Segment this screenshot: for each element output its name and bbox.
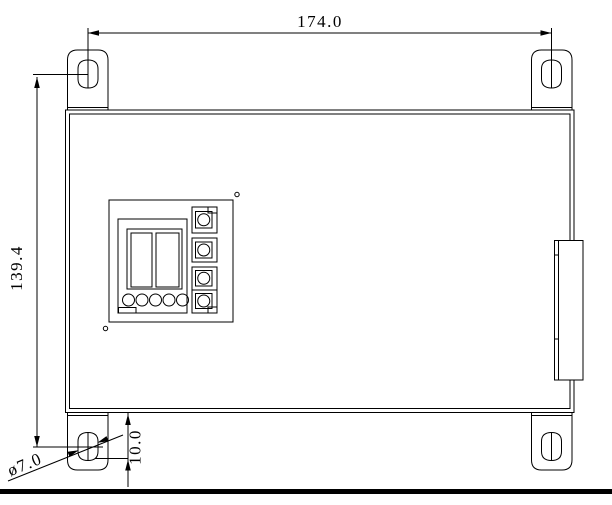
control-panel [103, 192, 239, 330]
dimension-hole-diameter-label: ø7.0 [5, 449, 45, 480]
drawing-line-work: 174.0 139.4 10.0 [0, 12, 612, 494]
drawing-frame-line [0, 489, 612, 494]
enclosure-inner-edge [70, 114, 571, 409]
display-module [118, 219, 189, 313]
panel-screw-hole-bottom-left [103, 326, 107, 330]
display-window-left [131, 233, 152, 287]
panel-button-3 [150, 294, 162, 306]
dimension-height: 139.4 [7, 75, 103, 448]
enclosure-body [66, 110, 575, 413]
panel-button-1 [123, 294, 135, 306]
display-bezel [127, 229, 182, 289]
dim-arrow-left [88, 30, 99, 36]
dim-arrow-offset-top [125, 414, 131, 425]
dimension-width: 174.0 [88, 12, 552, 60]
side-rail-clip [555, 241, 584, 381]
dimension-width-label: 174.0 [297, 12, 343, 31]
terminal-connector-3 [192, 267, 217, 290]
enclosure-outer-edge [66, 110, 575, 413]
terminal-connectors [192, 207, 217, 313]
engineering-drawing-canvas: 174.0 139.4 10.0 [0, 0, 612, 505]
mounting-tabs [68, 50, 573, 470]
enclosure-dimension-drawing: 174.0 139.4 10.0 [0, 0, 612, 505]
terminal-connector-1 [192, 207, 217, 233]
dim-arrow-down [34, 436, 40, 447]
display-module-tab [119, 308, 137, 314]
dimension-offset-label: 10.0 [126, 429, 145, 465]
panel-button-4 [163, 294, 175, 306]
panel-button-2 [136, 294, 148, 306]
terminal-connector-4 [192, 290, 217, 313]
dim-arrow-right [541, 30, 552, 36]
panel-screw-hole-top-right [235, 192, 239, 196]
control-panel-cutout [109, 200, 233, 322]
terminal-connector-2 [192, 238, 217, 262]
display-window-right [156, 233, 179, 287]
dimension-height-label: 139.4 [7, 245, 26, 291]
dim-arrow-up [34, 77, 40, 88]
